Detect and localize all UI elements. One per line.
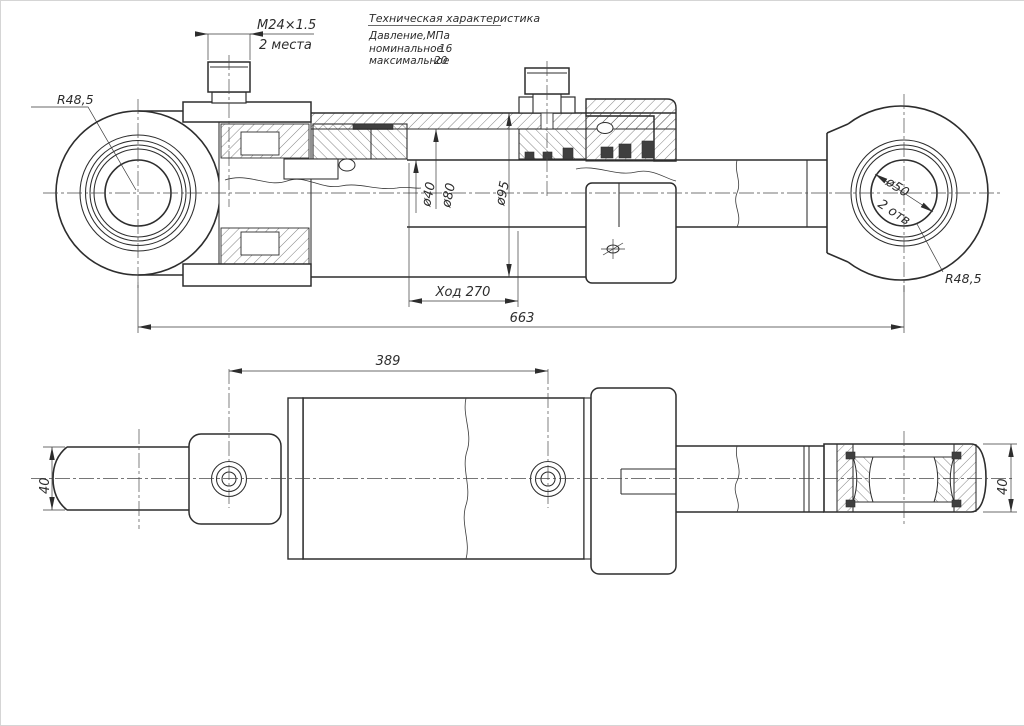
left-eye-width-label: 40 [38, 477, 53, 494]
max-value: 20 [434, 55, 448, 67]
bore-diameter-label: ø80 [439, 182, 459, 210]
tech-note-block: Техническая характеристика Давление,МПа … [368, 12, 540, 67]
head-flange-bottom [183, 264, 311, 286]
hydraulic-cylinder-drawing: M24×1.5 2 места Техническая характеристи… [1, 1, 1024, 725]
right-eye-section-plan [824, 444, 986, 512]
left-eye-radius-label: R48,5 [57, 92, 94, 107]
main-section-view: M24×1.5 2 места Техническая характеристи… [31, 12, 1003, 333]
break-line [735, 446, 739, 512]
partial-section-break [576, 168, 676, 181]
right-eye-width-label: 40 [996, 478, 1011, 495]
tech-note-title: Техническая характеристика [369, 12, 540, 25]
retaining-ring [846, 452, 855, 459]
rear-cap [576, 99, 676, 283]
thread-places-label: 2 места [259, 38, 312, 53]
tube-diameter-label: ø95 [493, 180, 513, 208]
pressure-label: Давление,МПа [368, 30, 450, 42]
rod-collar [284, 159, 338, 179]
nominal-label: номинальное [369, 43, 443, 55]
right-eye-radius-label: R48,5 [945, 271, 982, 286]
retaining-ring [952, 500, 961, 507]
tail-rod-plan [676, 446, 824, 512]
port-spacing-label: 389 [376, 354, 401, 369]
rear-cap-body [586, 183, 676, 283]
piston [519, 129, 586, 159]
eye-bore-diameter-label: ø50 [882, 174, 912, 200]
retaining-ring [952, 452, 961, 459]
overall-length-label: 663 [510, 311, 535, 326]
rear-cap-plan [584, 388, 676, 574]
head-flange-top [183, 102, 311, 122]
tail-rod [736, 160, 807, 227]
retaining-ring [846, 500, 855, 507]
thread-callout-label: M24×1.5 [257, 18, 316, 33]
drawing-sheet: M24×1.5 2 места Техническая характеристи… [0, 0, 1024, 726]
bottom-plan-view: 389 40 40 [31, 354, 1017, 574]
nominal-value: 16 [439, 43, 453, 55]
dimensions-main: M24×1.5 2 места Техническая характеристи… [31, 12, 982, 333]
break-line [736, 160, 739, 227]
stroke-label: Ход 270 [435, 285, 491, 300]
head-gland-assembly [183, 102, 421, 286]
